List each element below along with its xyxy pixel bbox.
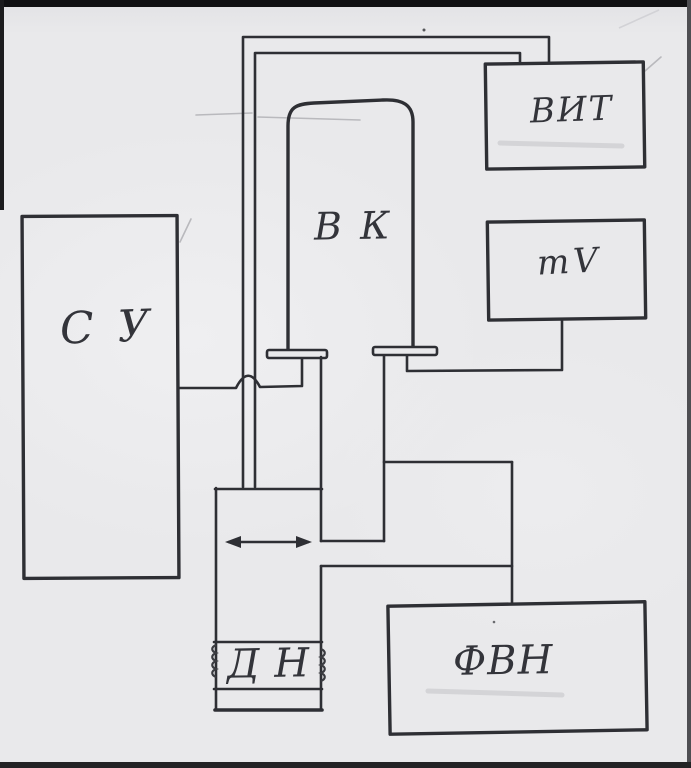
pencil-stray-mark [645,57,661,71]
chamber-left-flange [267,350,327,358]
arrowhead-right [296,536,312,548]
chamber-right-flange [373,347,437,355]
control-unit-label: С У [59,304,155,351]
scan-edge-top [0,0,691,7]
eraser-smudge [428,691,562,695]
wire-mv-to-chamber [407,320,562,371]
forepump-label: ФВН [453,640,554,682]
paper-crease [619,10,659,28]
scan-edge-bottom [0,762,691,768]
gauge-vit-label: ВИТ [529,92,613,129]
arrowhead-left [225,536,241,548]
scanned-diagram: С У В К ВИТ mV Д Н ФВН [0,0,691,768]
pencil-stray-mark [258,117,360,120]
scan-edge-right [687,0,691,768]
wire-su-to-chamber [178,357,302,388]
pencil-stray-mark [180,219,191,242]
millivoltmeter-label: mV [536,243,602,280]
ink-speck [493,621,496,624]
vacuum-chamber-label: В К [314,206,393,245]
ink-speck [423,29,426,32]
scan-edge-left [0,0,4,210]
eraser-smudge [500,143,622,146]
control-unit-box [22,216,179,579]
diffusion-pump-label: Д Н [227,643,311,684]
